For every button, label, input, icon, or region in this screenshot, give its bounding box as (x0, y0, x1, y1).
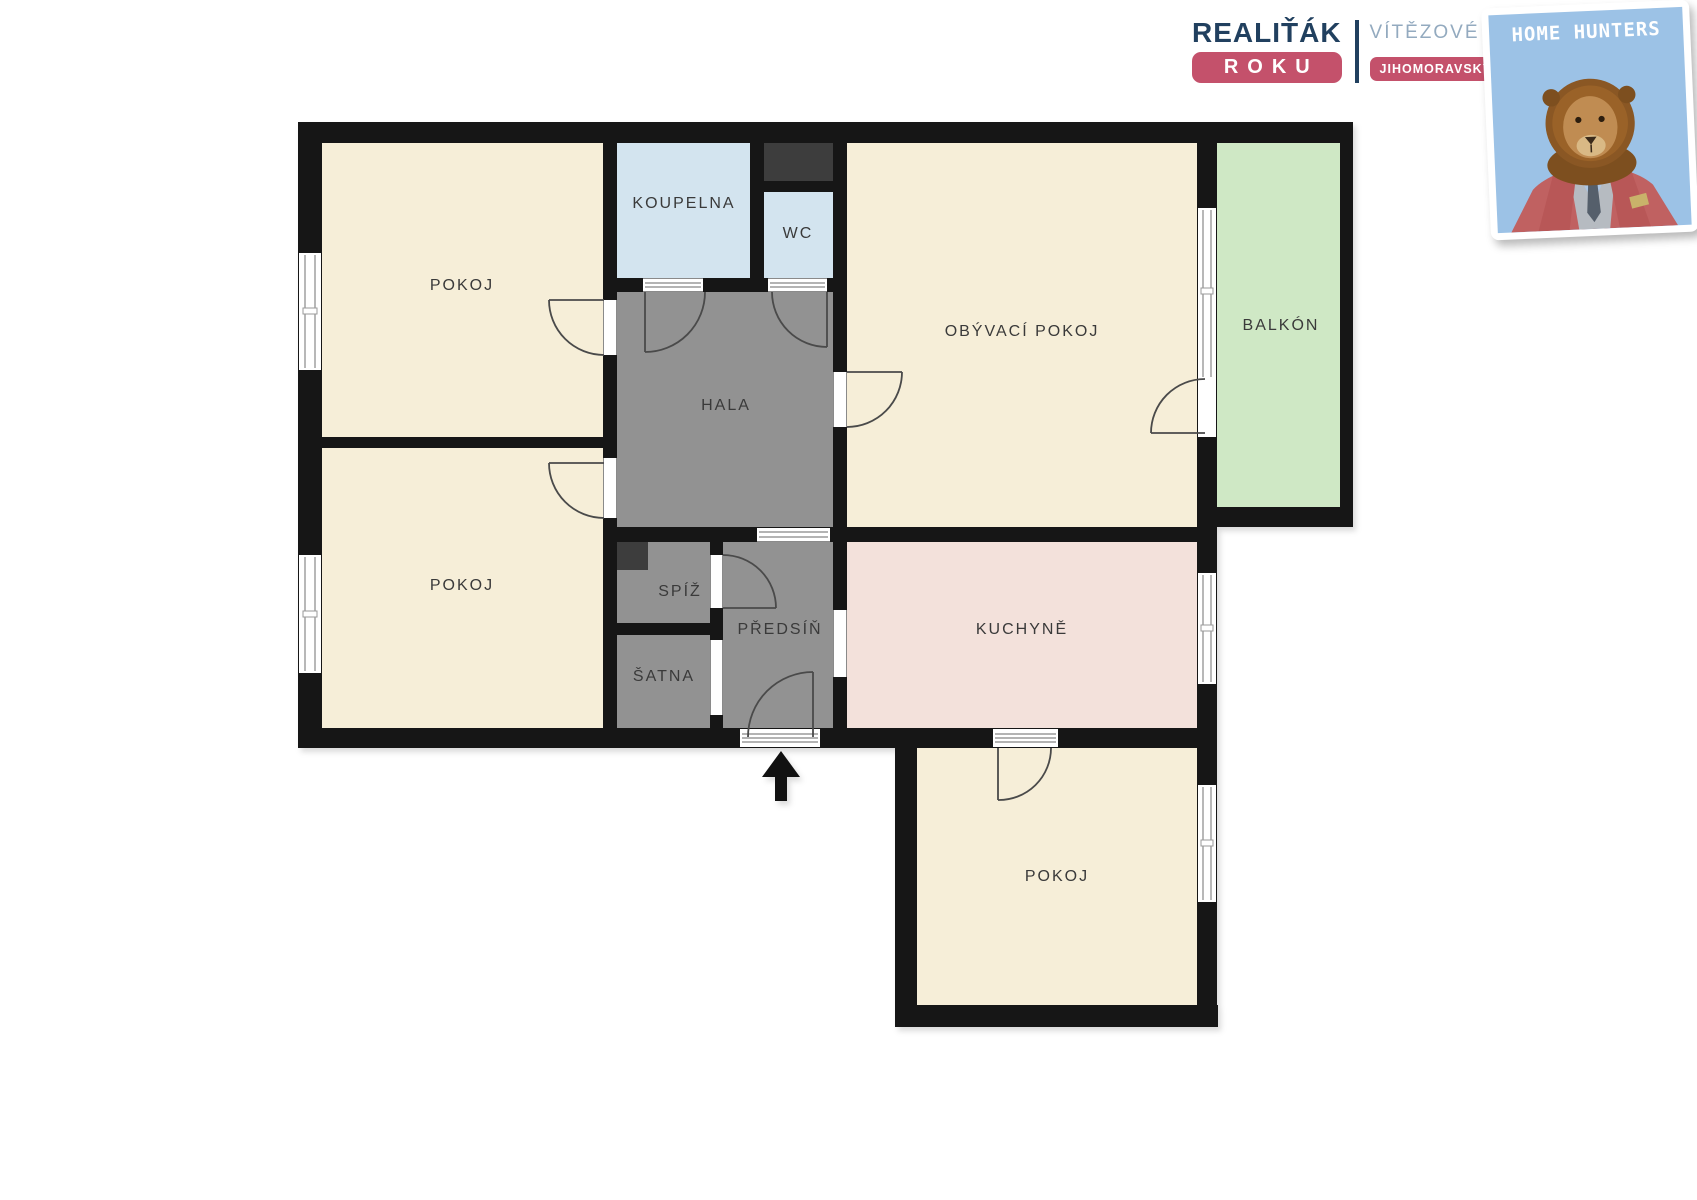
threshold-entrance (740, 729, 820, 747)
shaft-block-wc (764, 143, 833, 181)
floor-plan: POKOJ KOUPELNA WC OBÝVACÍ POKOJ BALKÓN H… (0, 0, 1697, 1200)
window-kuchyne (1198, 573, 1216, 684)
home-hunters-card: HOME HUNTERS (1481, 0, 1697, 240)
logo-divider (1355, 20, 1359, 83)
roku-badge: ROKU (1192, 52, 1342, 83)
threshold-koupelna (643, 279, 703, 292)
threshold-wc (768, 279, 827, 292)
label-satna: ŠATNA (633, 666, 695, 685)
label-pokoj-top-left: POKOJ (430, 277, 494, 294)
shaft-block-spiz (617, 540, 648, 570)
threshold-pokoj-bottom (993, 729, 1058, 747)
room-fills (322, 143, 1340, 1005)
home-hunters-logo-text: HOME HUNTERS (1489, 17, 1684, 47)
window-pokoj-bottom (1198, 785, 1216, 902)
door-frame-spiz (711, 555, 723, 608)
door-frame-pokoj-top (604, 300, 617, 355)
door-frame-predsin-kuchyne (834, 610, 847, 677)
door-frame-pokoj-bottom (604, 458, 617, 518)
threshold-hala-predsin (757, 528, 830, 542)
realitak-title: REALIŤÁK (1192, 18, 1342, 48)
entrance-arrow (762, 751, 800, 801)
window-pokoj-bottom-left (299, 555, 321, 673)
page: POKOJ KOUPELNA WC OBÝVACÍ POKOJ BALKÓN H… (0, 0, 1697, 1200)
label-pokoj-bottom-left: POKOJ (430, 577, 494, 594)
opening-satna (711, 640, 723, 715)
window-pokoj-top-left (299, 253, 321, 370)
label-pokoj-bottom: POKOJ (1025, 868, 1089, 885)
lion-illustration (1491, 65, 1692, 233)
label-wc: WC (783, 225, 814, 242)
label-kuchyne: KUCHYNĚ (976, 619, 1068, 638)
label-spiz: SPÍŽ (658, 581, 702, 600)
label-predsin: PŘEDSÍŇ (737, 619, 822, 638)
window-obyvaci-balkon (1198, 208, 1216, 379)
door-opening-balkon (1198, 379, 1216, 437)
label-koupelna: KOUPELNA (632, 195, 735, 212)
door-frame-hala-obyvaci (834, 372, 847, 427)
lion-head (1542, 77, 1640, 188)
home-hunters-inner: HOME HUNTERS (1488, 7, 1691, 233)
label-obyvaci-pokoj: OBÝVACÍ POKOJ (945, 321, 1100, 340)
label-hala: HALA (701, 397, 751, 414)
label-balkon: BALKÓN (1243, 315, 1320, 334)
